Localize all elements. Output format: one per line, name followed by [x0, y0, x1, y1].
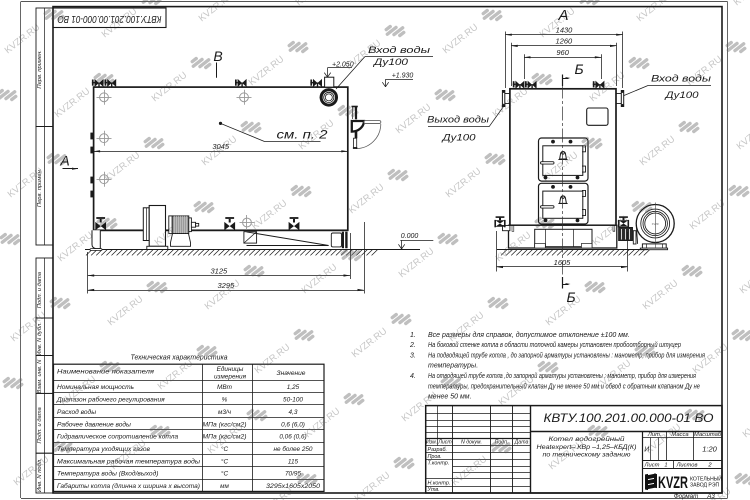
svg-text:Расход воды: Расход воды: [57, 408, 96, 416]
svg-text:3125: 3125: [211, 266, 229, 275]
svg-text:Единицы: Единицы: [217, 365, 244, 373]
svg-text:На подводящей трубе котла ,: На подводящей трубе котла , до запорной …: [428, 351, 705, 359]
svg-text:Инв. N дубл.: Инв. N дубл.: [37, 322, 43, 356]
svg-text:+1.930: +1.930: [392, 72, 414, 79]
svg-text:Номинальная мощность: Номинальная мощность: [57, 384, 135, 391]
svg-text:Выход воды: Выход воды: [427, 114, 489, 125]
svg-text:Котел водогрейный: Котел водогрейный: [549, 435, 625, 443]
svg-text:Взам. инв. N: Взам. инв. N: [37, 359, 43, 394]
svg-text:960: 960: [556, 48, 569, 57]
svg-text:Лист: Лист: [644, 463, 660, 469]
svg-text:1: 1: [664, 463, 667, 469]
svg-text:0.000: 0.000: [401, 233, 419, 240]
svg-text:Значение: Значение: [277, 370, 306, 377]
svg-text:Heatexpert– КВр –1,25–КБД(К): Heatexpert– КВр –1,25–КБД(К): [537, 444, 637, 451]
svg-text:В: В: [213, 48, 222, 64]
svg-text:Формат: Формат: [674, 493, 699, 500]
svg-text:Лист: Лист: [437, 440, 452, 446]
svg-text:4,3: 4,3: [289, 409, 298, 416]
svg-text:2.: 2.: [409, 342, 416, 349]
svg-text:°С: °С: [221, 457, 229, 465]
svg-text:Листов: Листов: [675, 463, 697, 469]
svg-text:Подп. и дата: Подп. и дата: [37, 406, 43, 443]
svg-text:1,25: 1,25: [287, 384, 300, 391]
svg-text:не более 250: не более 250: [273, 445, 312, 453]
svg-text:Масштаб: Масштаб: [694, 432, 722, 438]
svg-text:МВт: МВт: [217, 384, 233, 391]
svg-text:Н.контр.: Н.контр.: [428, 480, 451, 486]
svg-text:KVZR: KVZR: [658, 473, 688, 492]
svg-text:На отводящей трубе котла ,до з: На отводящей трубе котла ,до запорной ар…: [428, 372, 696, 380]
svg-text:1260: 1260: [556, 37, 574, 46]
svg-text:Пров.: Пров.: [428, 454, 442, 460]
svg-text:температуры, предохранительный: температуры, предохранительный клапан Ду…: [428, 382, 700, 390]
svg-text:Дата: Дата: [514, 440, 529, 446]
svg-text:Подп. и дата: Подп. и дата: [37, 271, 43, 308]
svg-text:Ду100: Ду100: [664, 90, 699, 101]
svg-text:м3/ч: м3/ч: [218, 409, 232, 416]
svg-text:Рабочее давление воды: Рабочее давление воды: [57, 420, 131, 428]
svg-text:Разраб.: Разраб.: [428, 447, 448, 453]
svg-text:%: %: [222, 397, 228, 404]
svg-text:N докум.: N докум.: [461, 440, 482, 446]
svg-text:КВТУ.100.201.00.000-01 ВО: КВТУ.100.201.00.000-01 ВО: [57, 13, 161, 24]
svg-text:3.: 3.: [410, 352, 416, 359]
svg-text:Б: Б: [574, 61, 583, 77]
svg-text:0,6 (6,0): 0,6 (6,0): [281, 421, 305, 428]
svg-text:50-100: 50-100: [283, 397, 303, 404]
svg-text:0,06 (0,6): 0,06 (0,6): [279, 434, 306, 441]
svg-text:Утв.: Утв.: [427, 487, 440, 493]
svg-text:1605: 1605: [554, 258, 572, 267]
svg-text:115: 115: [288, 458, 299, 465]
svg-text:ЗАВОД РЭП: ЗАВОД РЭП: [690, 482, 719, 488]
svg-text:1.: 1.: [410, 332, 416, 339]
svg-text:Температура воды (Вход/выход): Температура воды (Вход/выход): [57, 470, 158, 478]
svg-text:мм: мм: [220, 483, 229, 490]
svg-text:измерения: измерения: [214, 374, 247, 381]
svg-text:температуры.: температуры.: [428, 363, 478, 370]
svg-text:4.: 4.: [410, 373, 416, 380]
svg-text:Перв. примен.: Перв. примен.: [37, 50, 43, 89]
svg-text:°С: °С: [221, 470, 229, 478]
svg-text:Ду100: Ду100: [373, 57, 409, 68]
svg-text:Изм.: Изм.: [426, 440, 437, 446]
svg-text:Габариты котла (длинна х ширин: Габариты котла (длинна х ширина х высота…: [57, 482, 200, 490]
svg-text:Ду100: Ду100: [441, 132, 476, 143]
svg-text:1:20: 1:20: [702, 445, 717, 454]
svg-text:Т.контр.: Т.контр.: [428, 461, 450, 467]
